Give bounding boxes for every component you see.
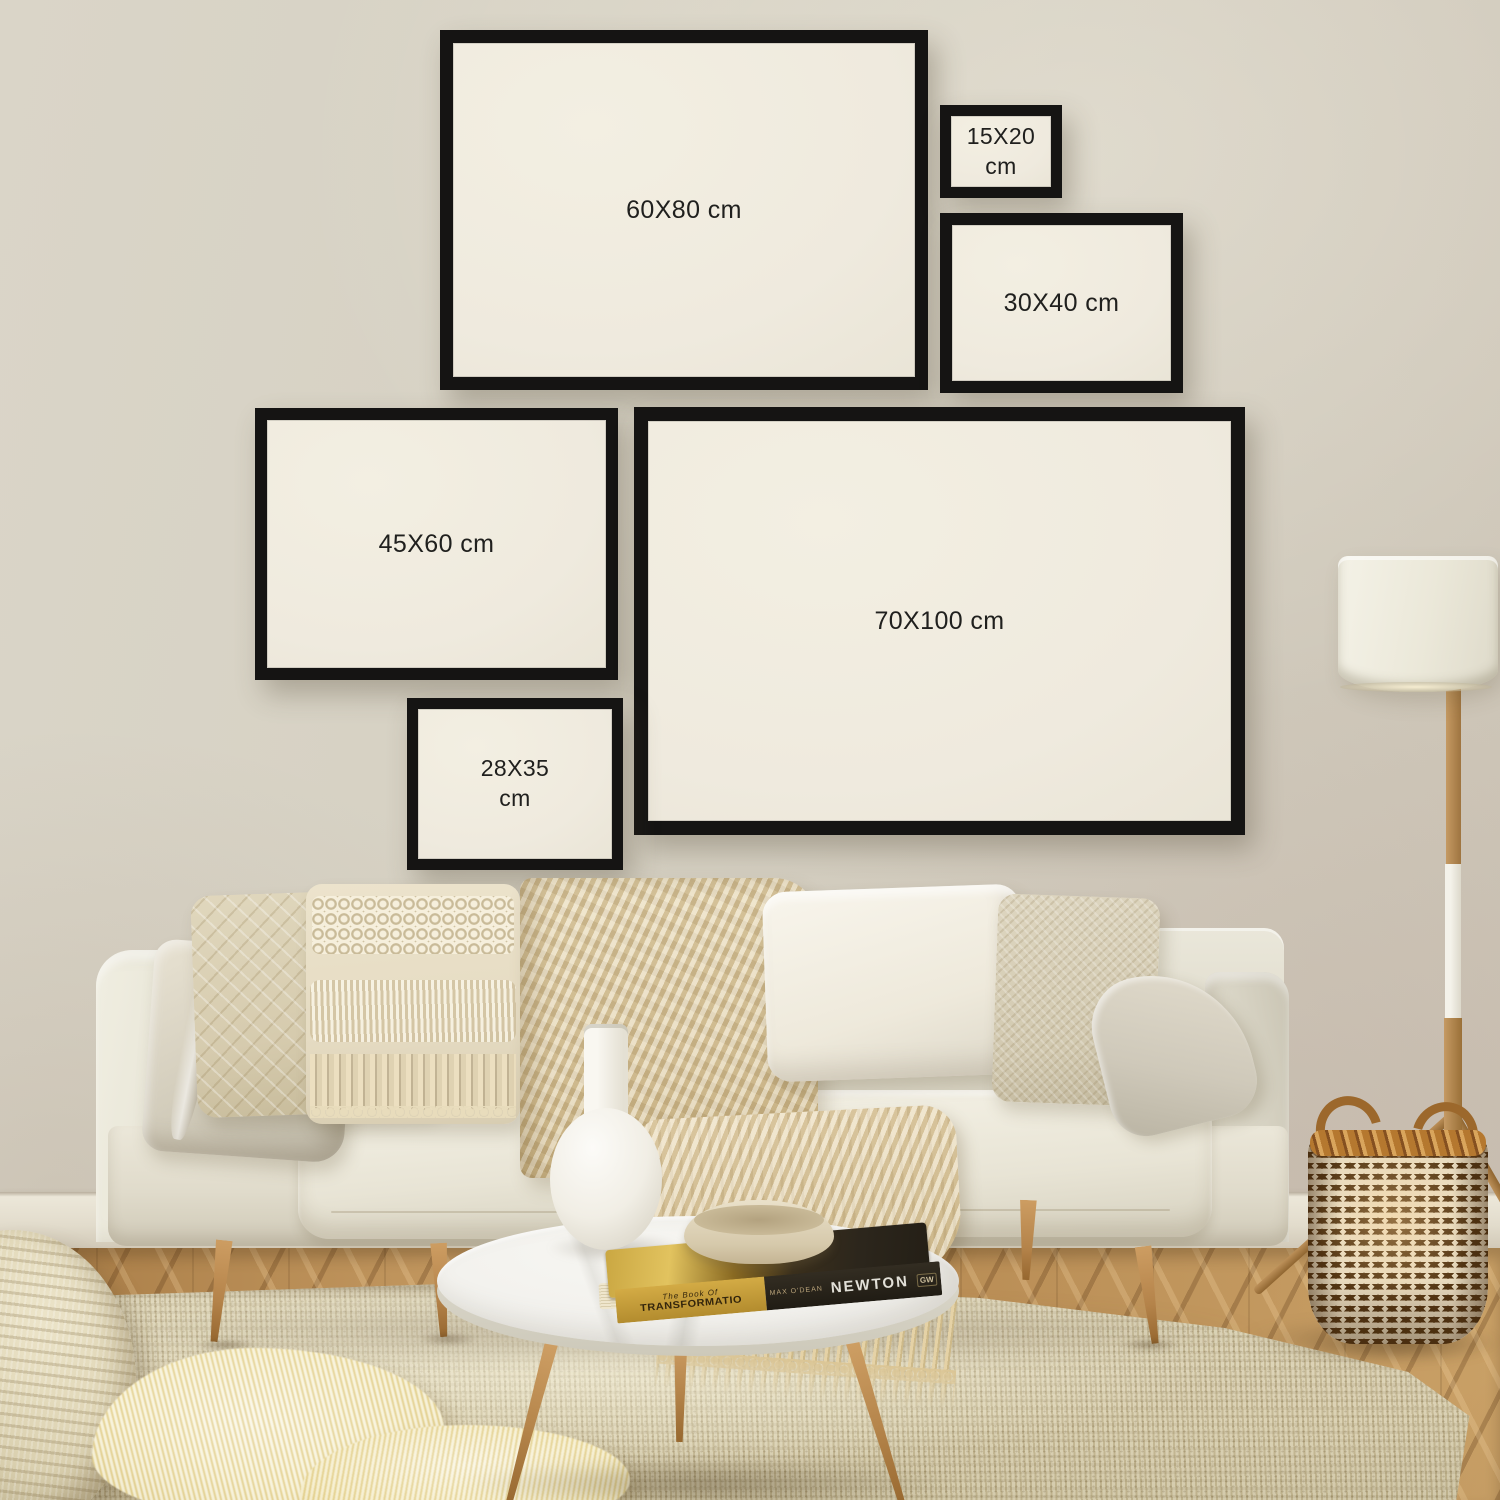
- pillow-boho-tassel: [306, 884, 520, 1124]
- frame-label-60x80: 60X80 cm: [626, 194, 742, 227]
- frame-label-45x60: 45X60 cm: [379, 528, 495, 561]
- woven-basket: [1308, 1094, 1488, 1346]
- lamp-pole-wood: [1446, 688, 1461, 868]
- pillow-shag-band: [310, 980, 516, 1042]
- book-publisher-logo: GW: [916, 1272, 937, 1287]
- white-vase: [550, 1108, 662, 1250]
- lamp-pole-white: [1445, 864, 1461, 1022]
- frame-30x40: 30X40 cm: [940, 213, 1183, 393]
- frame-45x60: 45X60 cm: [255, 408, 618, 680]
- frame-label-70x100: 70X100 cm: [874, 605, 1004, 638]
- bowl-interior: [694, 1205, 824, 1235]
- floor-lamp-shade: [1338, 556, 1498, 692]
- leg-shadow: [418, 1332, 478, 1346]
- living-room-size-guide-photo: 60X80 cm 15X20 cm 30X40 cm 45X60 cm 70X1…: [0, 0, 1500, 1500]
- frame-label-28x35: 28X35 cm: [473, 754, 557, 814]
- basket-rim: [1310, 1130, 1486, 1156]
- frame-28x35: 28X35 cm: [407, 698, 623, 870]
- pillow-braid-band: [312, 896, 514, 954]
- ceramic-bowl: [684, 1200, 834, 1264]
- leg-shadow: [1120, 1338, 1180, 1352]
- pillow-white: [762, 884, 1026, 1083]
- book-author-text: MAX O'DEAN: [769, 1285, 823, 1297]
- frame-15x20: 15X20 cm: [940, 105, 1062, 198]
- book-author-surname-text: NEWTON: [830, 1272, 910, 1296]
- pillow-fringe-band: [310, 1054, 516, 1110]
- frame-label-30x40: 30X40 cm: [1004, 287, 1120, 320]
- basket-body: [1308, 1130, 1488, 1344]
- frame-label-15x20: 15X20 cm: [959, 122, 1043, 182]
- frame-60x80: 60X80 cm: [440, 30, 928, 390]
- frame-70x100: 70X100 cm: [634, 407, 1245, 835]
